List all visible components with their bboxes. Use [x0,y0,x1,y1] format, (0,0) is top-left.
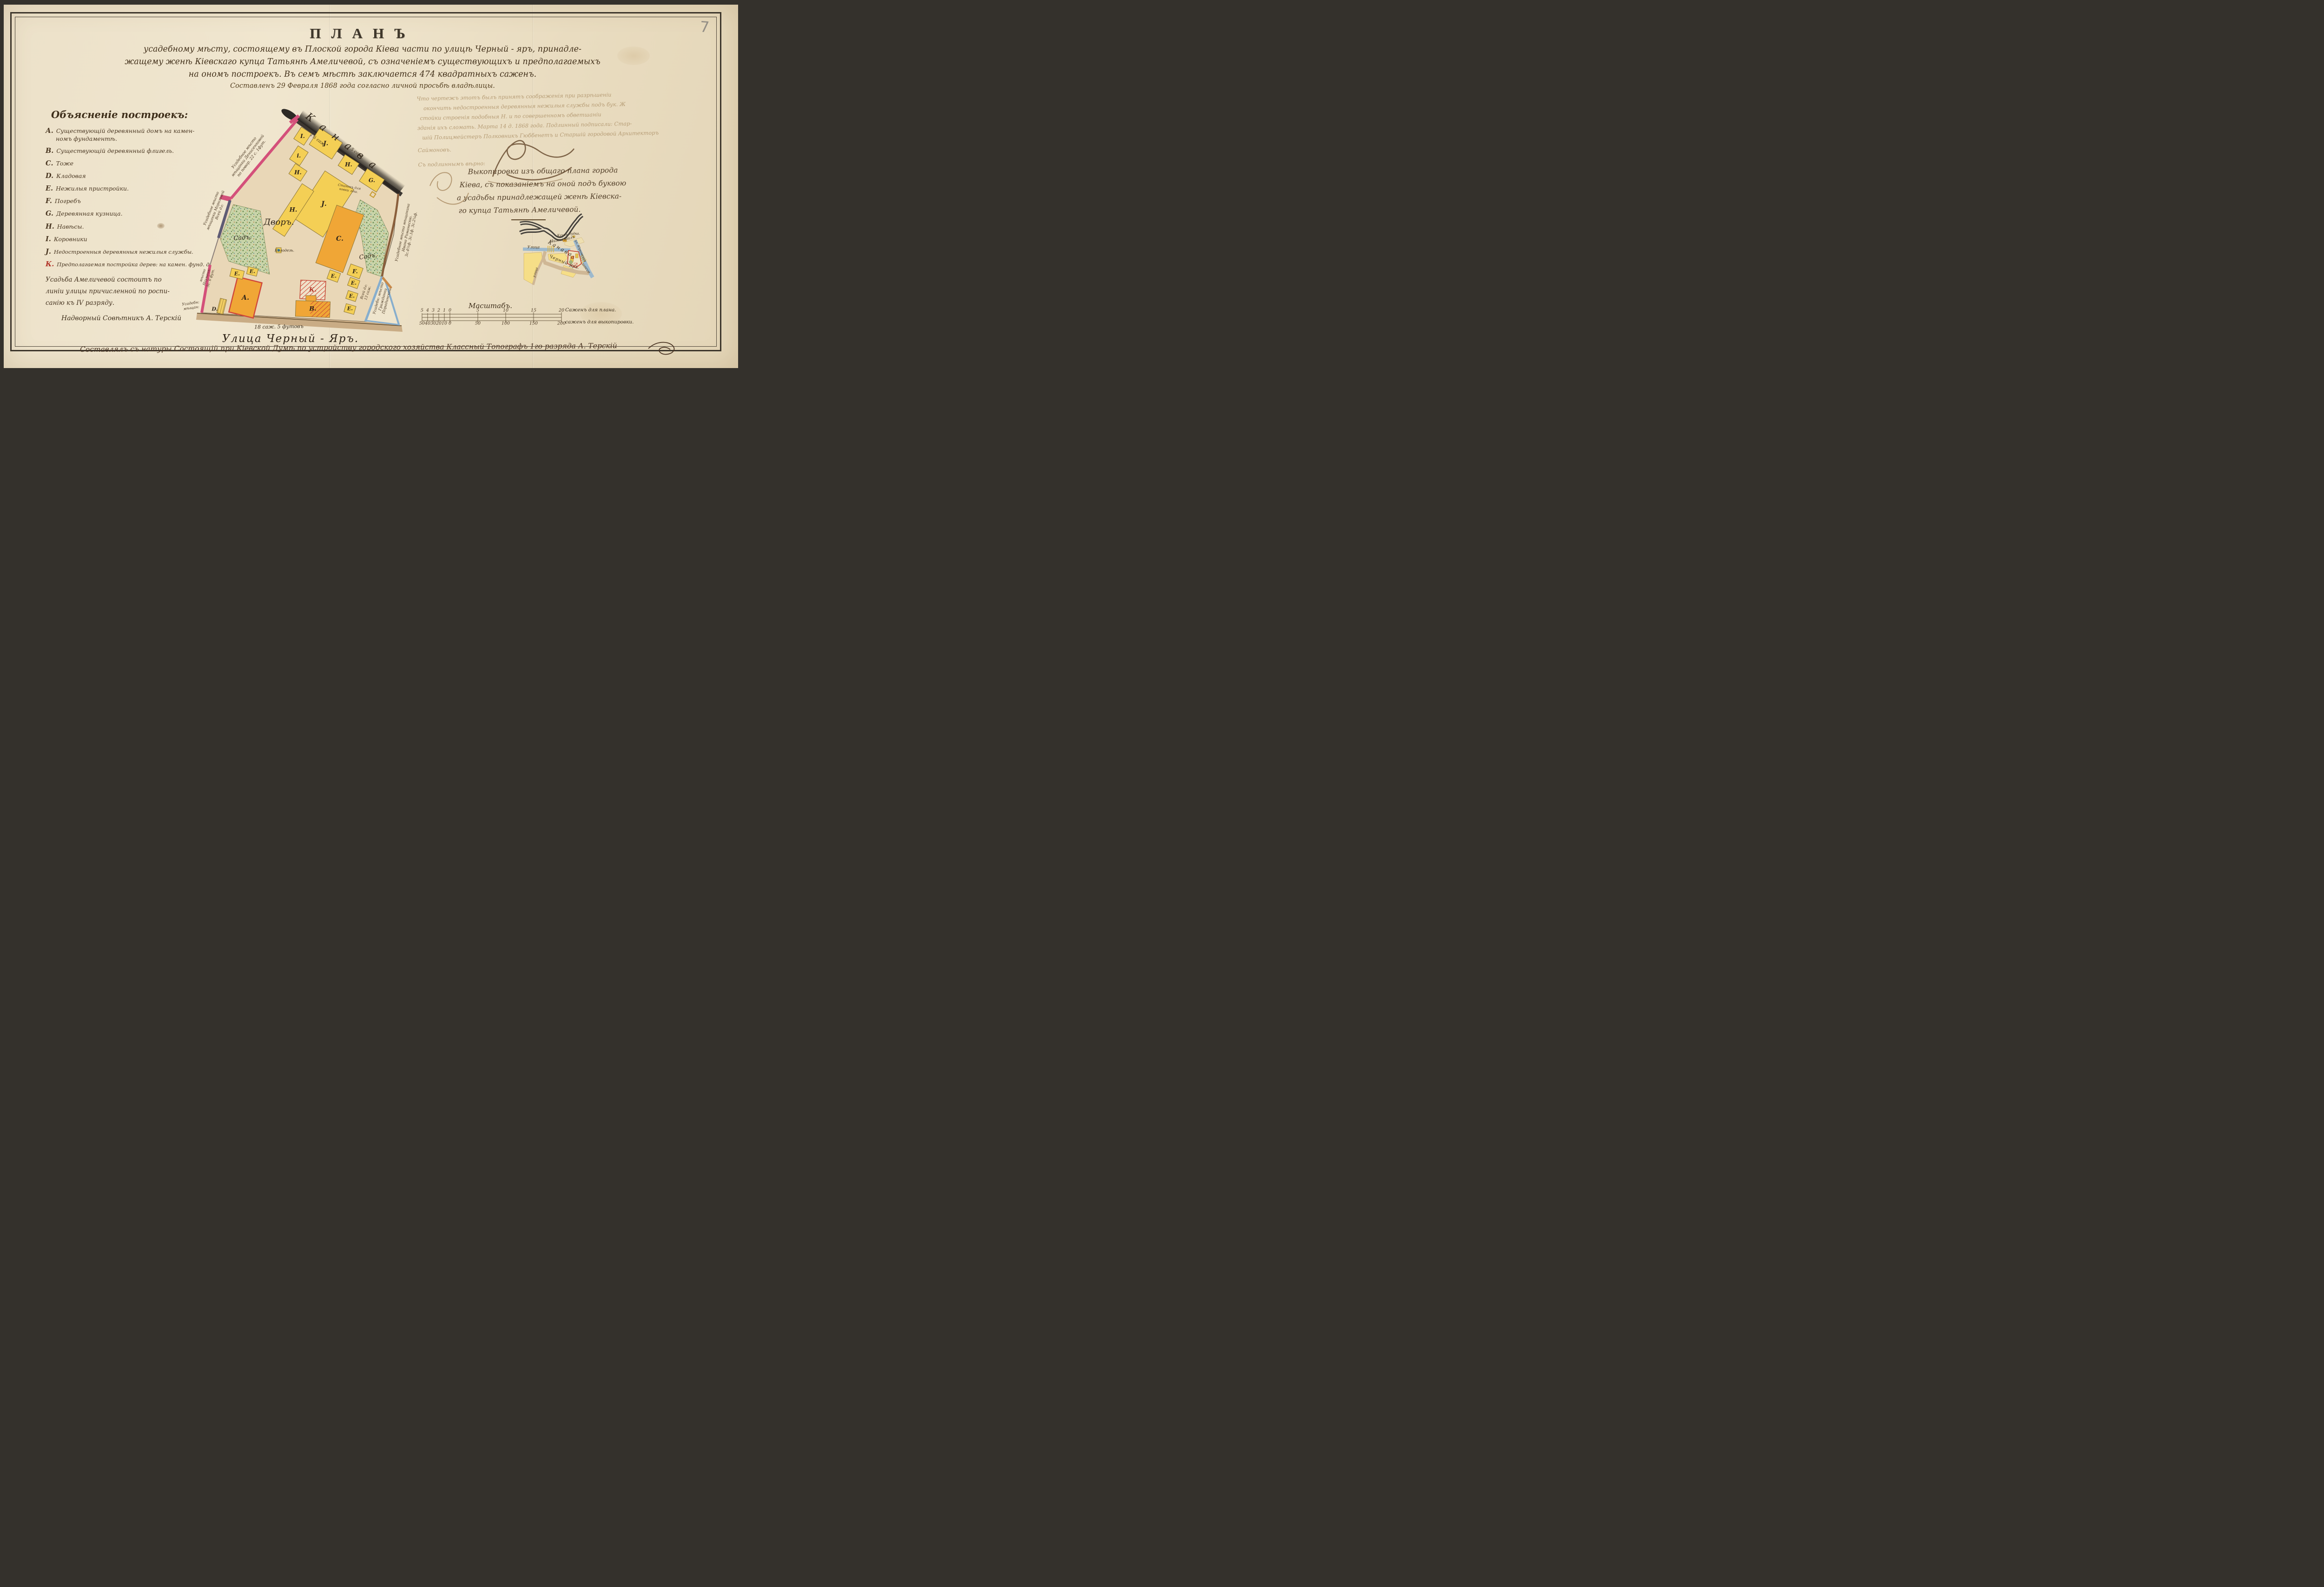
scale-tick-bottom: 100 [502,321,510,326]
scale-tick-top: 20 [559,308,564,313]
scale-tick-top: 4 [426,308,429,313]
scale-tick-top: 0 [449,308,451,313]
label-G: G. [369,177,375,184]
plan-title: ПЛАНЪ [42,25,683,42]
scale-tick-top: 2 [437,308,440,313]
scale-tick-bottom: 20 [436,321,442,326]
excerpt-line-1: Выкопировка изъ общаго плана города [468,166,618,176]
footer-flourish [646,339,679,358]
label-E-d: Е. [347,306,353,312]
scale-tick-bottom: 150 [529,321,538,326]
label-J2: Ј. [321,200,327,208]
excerpt-line-2: Кіева, съ показаніемъ на оной подъ букво… [460,179,627,189]
label-i: і. [297,152,301,159]
label-E-c: Е. [349,293,355,299]
title-line-3: на ономъ построекъ. Въ семъ мѣстѣ заключ… [42,70,683,79]
folio-number: 7 [700,18,710,36]
label-H2: Н. [290,207,297,214]
legend-letter: F. [46,197,52,205]
legend-text: Нежилыя пристройки. [56,185,129,192]
scale-tick-bottom: 10 [442,321,447,326]
inset-label-ulitsa: Улица [528,245,540,250]
scanned-plan-document: 7 ПЛАНЪ усадебному мѣсту, состоящему въ … [0,0,744,381]
label-C: С. [336,235,343,243]
legend-letter: Н. [46,223,54,230]
legend-text: Существующій деревянный флигель. [56,147,174,154]
legend-letter: G. [46,210,53,217]
inset-parcel-mark: a [571,254,574,260]
scale-tick-bottom: 40 [425,321,430,326]
scale-tick-top: 15 [531,308,536,313]
legend-text: Коровники [54,236,87,243]
title-line-1: усадебному мѣсту, состоящему въ Плоской … [42,45,683,54]
scale-tick-bottom: 50 [475,321,481,326]
street-name-label: Улица Черный - Яръ. [222,333,359,345]
legend-text: Существующій деревянный домъ на камен- [56,127,195,134]
label-E-a: Е. [331,273,337,279]
legend-letter: Е. [46,184,53,192]
scale-tick-top: 3 [432,308,435,313]
legend-letter: А. [46,127,53,135]
legend-text: Погребъ [55,198,81,204]
scale-tick-top: 5 [421,308,423,313]
inset-label-booth: будка. [569,232,580,236]
legend-letter-red: К. [46,260,54,268]
well-label: Колодезь. [275,249,294,253]
label-F: F. [352,268,358,275]
frontage-dimension: 18 саж. 5 футовъ [254,323,304,330]
legend-letter: І. [46,235,51,243]
title-date-line: Составленъ 29 Февраля 1868 года согласно… [42,82,683,90]
legend-letter: С. [46,159,53,167]
label-E-A2: Е. [250,269,255,275]
label-K: К. [309,287,317,294]
scale-tick-top: 1 [443,308,446,313]
courtyard-label: Дворъ. [264,217,294,227]
legend-letter: D. [46,172,53,180]
scale-tick-bottom: 30 [430,321,436,326]
label-H3: Н. [345,161,352,168]
legend-letter: Ј. [46,248,51,256]
legend-text: Навѣсы. [57,223,84,230]
scale-unit-plan: Саженъ для плана. [565,307,616,313]
label-E-b: Е. [351,280,357,286]
scale-unit-excerpt: саженъ для выкопировки. [565,319,634,325]
scale-tick-bottom: 0 [449,321,451,326]
label-J1: Ј. [324,140,329,147]
title-line-2: жащему женѣ Кіевскаго купца Татьянѣ Амел… [42,57,683,66]
legend-letter: В. [46,147,53,155]
scale-tick-bottom: 50 [419,321,425,326]
label-B: В. [309,306,317,313]
legend-text: Деревянная кузница. [56,210,123,217]
building-K-step [306,296,316,301]
scale-tick-top: 10 [503,308,508,313]
legend-text: Недостроенныя деревянныя нежилыя службы. [54,249,193,255]
label-I: І. [300,133,305,139]
label-H1: Н. [294,169,302,176]
scale-tick-bottom: 200 [557,321,566,326]
label-A: А. [242,294,249,302]
legend-text: Кладовая [56,172,86,179]
excerpt-line-3: a усадьбы принадлежащей женѣ Кіевска- [457,192,621,202]
label-D: D. [212,306,218,312]
label-E-A1: Е. [234,271,240,277]
inset-map [518,211,676,316]
legend-text: Тоже [56,160,73,167]
inset-parcel-building [575,254,578,258]
scale-tick-top: 5 [476,308,479,313]
